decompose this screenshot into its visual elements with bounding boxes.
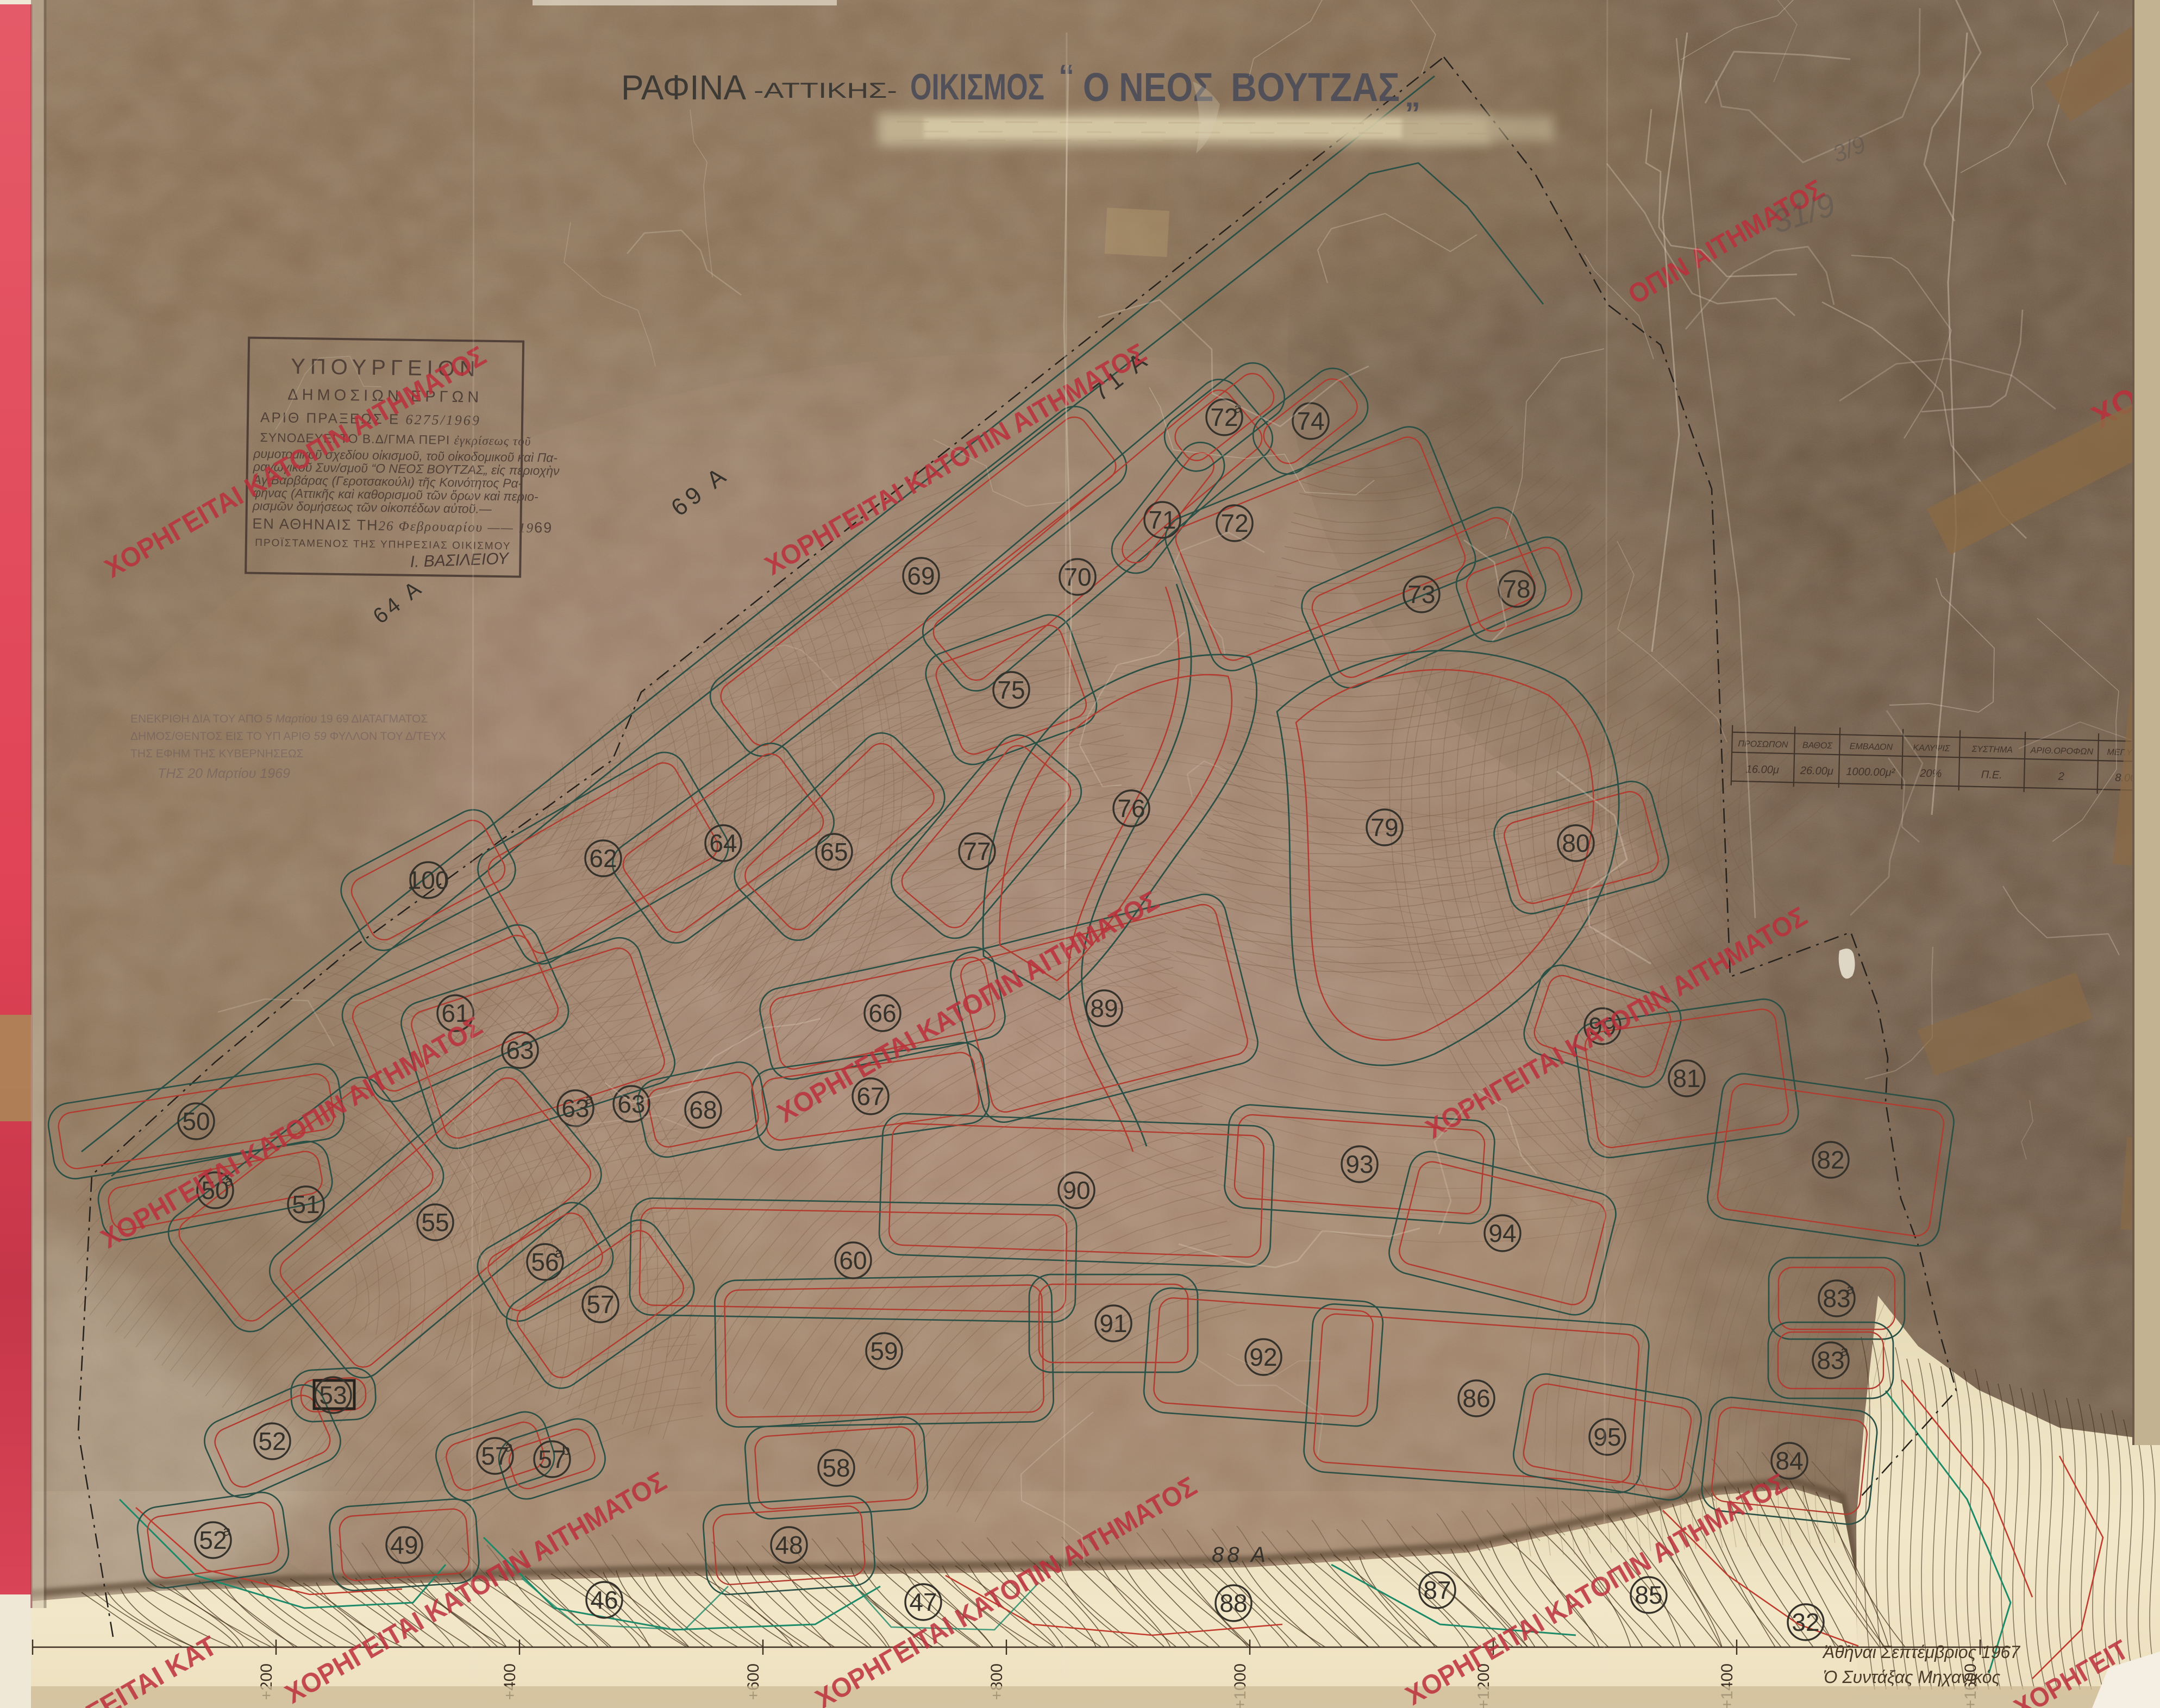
svg-text:„: „ — [1405, 78, 1420, 114]
svg-text:87: 87 — [1423, 1576, 1451, 1604]
svg-text:a: a — [1840, 1343, 1849, 1359]
svg-text:76: 76 — [1117, 794, 1145, 822]
svg-text:64: 64 — [709, 829, 737, 857]
svg-text:46: 46 — [590, 1586, 618, 1614]
svg-text:77: 77 — [963, 837, 991, 865]
svg-text:79: 79 — [1370, 813, 1398, 842]
svg-text:ΣΥΣΤΗΜΑ: ΣΥΣΤΗΜΑ — [1971, 745, 2013, 755]
svg-text:b: b — [562, 1442, 570, 1458]
svg-text:85: 85 — [1635, 1581, 1662, 1609]
svg-text:70: 70 — [1063, 563, 1091, 591]
svg-text:2: 2 — [2057, 770, 2064, 782]
svg-text:Ἀθῆναι Σεπτέμβριος 1967: Ἀθῆναι Σεπτέμβριος 1967 — [1822, 1642, 2020, 1662]
svg-text:66: 66 — [868, 999, 896, 1027]
svg-text:ΒΑΘΟΣ: ΒΑΘΟΣ — [1802, 741, 1833, 751]
svg-text:50: 50 — [182, 1107, 210, 1135]
svg-text:32: 32 — [1792, 1608, 1819, 1636]
svg-text:95: 95 — [1593, 1423, 1621, 1451]
svg-text:a: a — [585, 1091, 594, 1107]
svg-text:ΚΑΛΥΨΙΣ: ΚΑΛΥΨΙΣ — [1913, 743, 1951, 753]
svg-text:Ὁ Συντάξας Μηχανικός: Ὁ Συντάξας Μηχανικός — [1823, 1667, 2001, 1687]
svg-text:63: 63 — [506, 1036, 534, 1064]
svg-text:a: a — [1846, 1281, 1855, 1297]
svg-text:48: 48 — [775, 1531, 803, 1559]
svg-text:91: 91 — [1099, 1309, 1127, 1337]
svg-text:ΕΝΕΚΡΙΘΗ ΔΙΑ ΤΟΥ ΑΠΟ 5 Μαρτίου: ΕΝΕΚΡΙΘΗ ΔΙΑ ΤΟΥ ΑΠΟ 5 Μαρτίου 19 69 ΔΙΑ… — [130, 713, 428, 725]
svg-text:81: 81 — [1673, 1064, 1700, 1092]
svg-text:69: 69 — [907, 562, 935, 590]
svg-text:ΤΗΣ 20 Μαρτίου 1969: ΤΗΣ 20 Μαρτίου 1969 — [158, 766, 290, 781]
svg-text:ΔΗΜΟΣ/ΘΕΝΤΟΣ ΕΙΣ ΤΟ ΥΠ ΑΡΙΘ 59: ΔΗΜΟΣ/ΘΕΝΤΟΣ ΕΙΣ ΤΟ ΥΠ ΑΡΙΘ 59 ΦΥΛΛΟΝ ΤΟ… — [130, 730, 446, 743]
svg-text:53: 53 — [319, 1381, 347, 1409]
svg-text:-ΑΤΤΙΚΗΣ-: -ΑΤΤΙΚΗΣ- — [754, 79, 897, 103]
svg-text:74: 74 — [1297, 407, 1324, 435]
svg-text:ΟΙΚΙΣΜΟΣ: ΟΙΚΙΣΜΟΣ — [910, 66, 1044, 108]
svg-text:86: 86 — [1462, 1384, 1490, 1412]
svg-text:73: 73 — [1407, 580, 1435, 608]
svg-text:60: 60 — [839, 1246, 867, 1274]
svg-text:58: 58 — [822, 1454, 850, 1482]
svg-text:80: 80 — [1562, 829, 1589, 857]
svg-text:82: 82 — [1817, 1146, 1844, 1174]
svg-text:a: a — [505, 1439, 514, 1455]
svg-text:ΑΡΙΘ.ΟΡΟΦΩΝ: ΑΡΙΘ.ΟΡΟΦΩΝ — [2030, 746, 2093, 757]
svg-text:62: 62 — [589, 844, 617, 872]
svg-text:67: 67 — [856, 1082, 884, 1110]
svg-text:63: 63 — [617, 1090, 645, 1118]
svg-text:Ο ΝΕΟΣ: Ο ΝΕΟΣ — [1083, 65, 1213, 110]
svg-text:55: 55 — [421, 1208, 449, 1236]
svg-text:49: 49 — [390, 1531, 418, 1559]
svg-text:16.00μ: 16.00μ — [1746, 763, 1780, 776]
svg-text:26.00μ: 26.00μ — [1800, 765, 1834, 777]
svg-text:68: 68 — [689, 1096, 717, 1124]
svg-text:88: 88 — [1219, 1589, 1247, 1617]
svg-text:47: 47 — [909, 1588, 937, 1616]
svg-text:59: 59 — [870, 1337, 898, 1365]
svg-text:72: 72 — [1220, 509, 1248, 537]
svg-text:88 A: 88 A — [1212, 1543, 1269, 1567]
svg-text:65: 65 — [820, 838, 848, 866]
svg-text:89: 89 — [1090, 994, 1118, 1022]
svg-text:51: 51 — [292, 1190, 320, 1219]
svg-text:71: 71 — [1148, 506, 1176, 534]
svg-text:57: 57 — [586, 1290, 614, 1318]
svg-text:20%: 20% — [1919, 768, 1942, 780]
svg-text:Ι. ΒΑΣΙΛΕΙΟΥ: Ι. ΒΑΣΙΛΕΙΟΥ — [410, 550, 510, 571]
svg-text:84: 84 — [1775, 1447, 1803, 1475]
svg-text:94: 94 — [1488, 1219, 1516, 1247]
svg-text:Π.Ε.: Π.Ε. — [1981, 769, 2002, 781]
svg-text:a: a — [555, 1245, 564, 1261]
svg-text:ΤΗΣ ΕΦΗΜ ΤΗΣ ΚΥΒΕΡΝΗΣΕΩΣ: ΤΗΣ ΕΦΗΜ ΤΗΣ ΚΥΒΕΡΝΗΣΕΩΣ — [130, 748, 304, 760]
svg-text:ΒΟΥΤΖΑΣ: ΒΟΥΤΖΑΣ — [1231, 65, 1400, 110]
svg-text:ΡΑΦΙΝΑ: ΡΑΦΙΝΑ — [621, 68, 746, 107]
svg-text:a: a — [223, 1523, 231, 1539]
svg-text:1000.00μ²: 1000.00μ² — [1846, 765, 1896, 778]
svg-text:100: 100 — [408, 866, 449, 894]
svg-text:78: 78 — [1502, 575, 1530, 603]
svg-text:ΕΜΒΑΔΟΝ: ΕΜΒΑΔΟΝ — [1850, 742, 1893, 752]
svg-text:93: 93 — [1345, 1150, 1373, 1178]
svg-text:75: 75 — [997, 676, 1025, 704]
svg-text:52: 52 — [258, 1427, 286, 1455]
svg-text:90: 90 — [1062, 1176, 1090, 1204]
